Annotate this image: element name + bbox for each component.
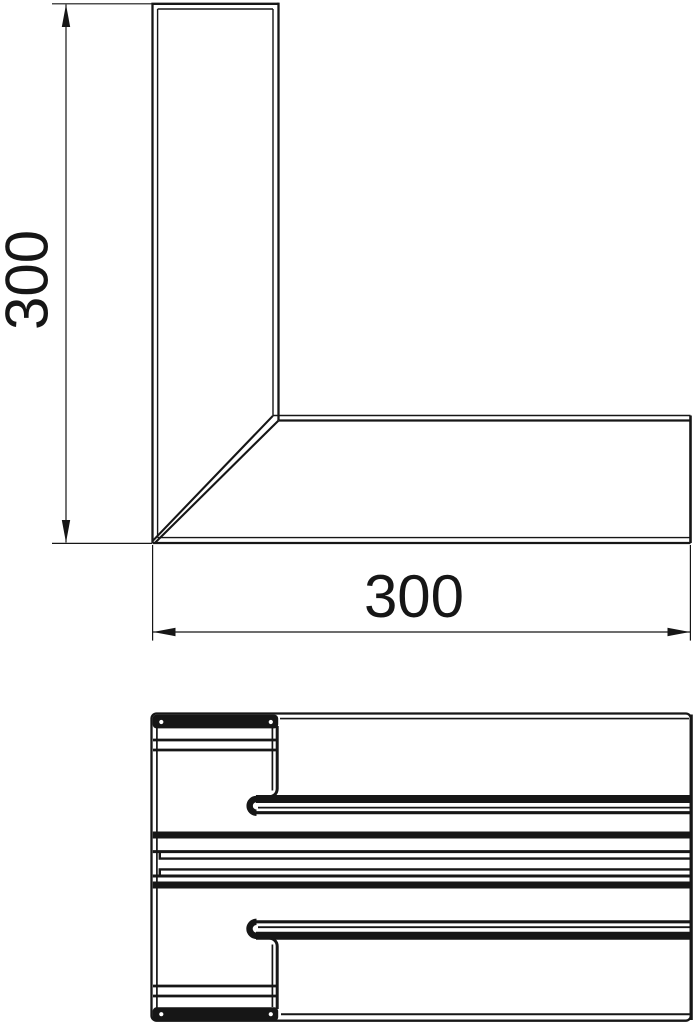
section-bottom-block (153, 938, 279, 1021)
bottom-bar-dot-right (269, 1012, 273, 1016)
arrowhead-left-icon (153, 628, 176, 636)
lower-tongue-rounded-cap (250, 922, 257, 936)
upper-tongue-rounded-cap (250, 799, 257, 813)
dimension-value-vertical: 300 (0, 230, 61, 330)
technical-drawing-svg: 300 300 (0, 0, 696, 1024)
section-middle-rails (153, 835, 691, 885)
plan-view (153, 3, 691, 543)
plan-outer-edge-left (153, 4, 279, 543)
section-view (152, 714, 692, 1022)
arrowhead-down-icon (62, 520, 70, 543)
horizontal-dimension: 300 (153, 545, 691, 641)
top-wall-bar (153, 715, 279, 729)
miter-seam-line-1 (153, 416, 273, 541)
top-bar-dot-right (269, 720, 273, 724)
arrowhead-right-icon (668, 628, 691, 636)
miter-seam-line-2 (155, 421, 278, 543)
middle-rail-line-2-hooked (160, 852, 691, 858)
section-outer-boundary (152, 714, 691, 1021)
top-bar-dot-left (159, 720, 163, 724)
section-upper-tongue (250, 799, 691, 813)
bottom-wall-bar (153, 1007, 279, 1021)
section-top-block (153, 715, 279, 798)
section-lower-tongue (250, 922, 691, 936)
vertical-dimension: 300 (0, 4, 153, 544)
arrowhead-up-icon (62, 5, 70, 28)
drawing-canvas: 300 300 (0, 0, 696, 1024)
bottom-bar-dot-left (159, 1012, 163, 1016)
dimension-value-horizontal: 300 (364, 563, 464, 630)
